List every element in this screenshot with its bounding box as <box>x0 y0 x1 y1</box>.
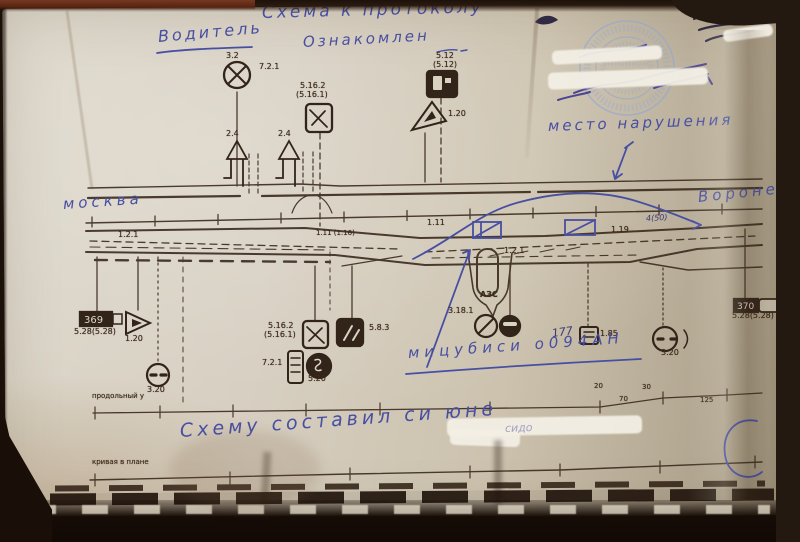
label-sign-5-16-2-top: 5.16.2 <box>300 82 325 90</box>
label-sign-3-2: 3.2 <box>226 52 239 60</box>
label-marking-1-11-1-16: 1.11 (1.16) <box>316 229 355 237</box>
sign-2-4-give-way-icon <box>276 141 299 186</box>
label-sign-3-20-right: 3.20 <box>661 349 679 357</box>
label-sign-7-2-1-top: 7.2.1 <box>259 63 279 71</box>
label-sign-1-20-top: 1.20 <box>448 110 466 118</box>
underline-vehicle-note <box>406 359 641 374</box>
label-profile-20: 20 <box>594 382 603 390</box>
label-sign-5-28-right: 5.28(5.28) <box>732 312 774 320</box>
label-profile-row1: продольный у <box>92 392 144 400</box>
sign-5-8-3-icon <box>337 319 363 346</box>
label-profile-70: 70 <box>619 395 628 403</box>
label-profile-125: 125 <box>700 396 713 404</box>
label-marking-1-11: 1.11 <box>427 219 445 227</box>
plate-7-2-1-icon <box>288 351 303 383</box>
photo-of-road-scheme-document: 369 370 <box>0 0 800 542</box>
label-sign-2-4-right: 2.4 <box>278 130 291 138</box>
label-sign-5-16-2-mid: 5.16.2 <box>268 322 293 330</box>
label-profile-30: 30 <box>642 383 651 391</box>
handwriting-redacted-fragment: сидо <box>505 421 533 435</box>
overtaking-trajectory-curve <box>413 193 701 259</box>
label-sign-7-2-1-mid: 7.2.1 <box>262 359 282 367</box>
label-sign-3-20-left: 3.20 <box>147 386 165 394</box>
big-c-loop <box>725 420 762 477</box>
label-sign-5-12: 5.12 <box>436 52 454 60</box>
label-sign-5-16-1-top: (5.16.1) <box>296 91 328 99</box>
label-sign-3-18-1: 3.18.1 <box>448 307 473 315</box>
label-marking-1-19: 1.19 <box>611 226 629 234</box>
handwriting-tiny-note: 4(50) <box>646 213 668 223</box>
label-profile-row2: кривая в плане <box>92 458 149 466</box>
label-sign-5-8-3: 5.8.3 <box>369 324 389 332</box>
label-marking-1-2-1-mid: 1.2.1 <box>504 247 524 255</box>
label-sign-5-16-1-mid: (5.16.1) <box>264 331 296 339</box>
label-marking-1-2-1-left: 1.2.1 <box>118 231 138 239</box>
sign-2-4-give-way-icon <box>224 141 247 186</box>
label-sign-5-20: 5.20 <box>308 375 326 383</box>
km-post-369-text: 369 <box>84 315 103 326</box>
label-sign-5-12-b: (5.12) <box>433 61 457 69</box>
label-sign-2-4-left: 2.4 <box>226 130 239 138</box>
label-azs-gas-station: АЗС <box>480 291 498 299</box>
label-sign-5-28-left: 5.28(5.28) <box>74 328 116 336</box>
label-sign-1-20-left: 1.20 <box>125 335 143 343</box>
violation-place-arrow <box>613 142 633 179</box>
